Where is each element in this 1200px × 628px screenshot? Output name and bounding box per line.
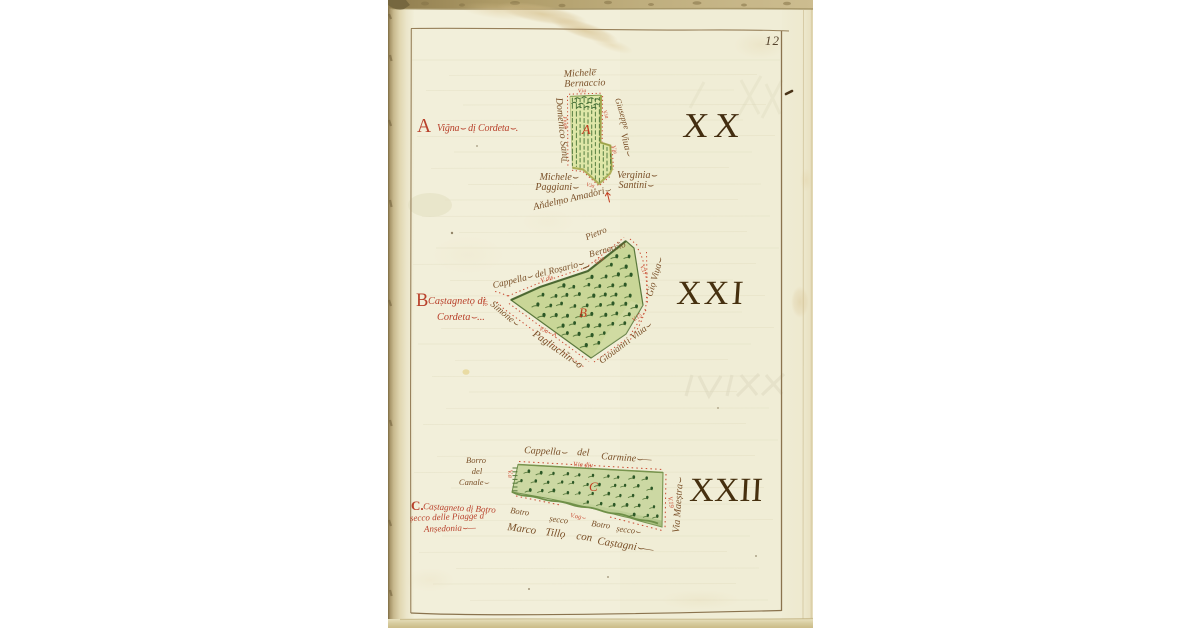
svg-text:del: del	[472, 466, 483, 476]
svg-text:Anṣedonia⌣—: Anṣedonia⌣—	[423, 522, 477, 534]
svg-text:con: con	[576, 530, 594, 544]
svg-text:Vig̃na⌣ dị Cordeta⌣.: Vig̃na⌣ dị Cordeta⌣.	[437, 123, 518, 134]
svg-text:Cordeta⌣...: Cordeta⌣...	[437, 312, 485, 323]
svg-text:Bernaccio: Bernaccio	[564, 77, 605, 89]
svg-text:A: A	[581, 123, 591, 138]
svg-text:XXII: XXII	[689, 472, 765, 509]
svg-text:V.a: V.a	[506, 470, 514, 479]
svg-text:B: B	[579, 305, 587, 320]
svg-text:C.: C.	[411, 498, 424, 513]
svg-text:12: 12	[765, 33, 780, 48]
svg-text:V.ia ḍịụ: V.ia ḍịụ	[573, 461, 594, 469]
svg-text:Canale⌣: Canale⌣	[459, 477, 490, 487]
svg-text:del: del	[577, 447, 590, 459]
svg-text:Borro: Borro	[466, 455, 486, 465]
svg-text:Caṣtagnetọ dị: Caṣtagnetọ dị	[428, 296, 486, 307]
svg-text:XX: XX	[681, 106, 748, 145]
svg-text:XXI: XXI	[675, 275, 747, 312]
svg-text:C: C	[589, 479, 598, 494]
svg-text:A: A	[417, 116, 431, 137]
svg-text:Paggiani⌣: Paggiani⌣	[534, 182, 579, 193]
svg-text:B: B	[416, 291, 428, 311]
svg-text:Cappella⌣: Cappella⌣	[524, 445, 568, 458]
svg-text:Santini⌣: Santini⌣	[619, 180, 654, 191]
